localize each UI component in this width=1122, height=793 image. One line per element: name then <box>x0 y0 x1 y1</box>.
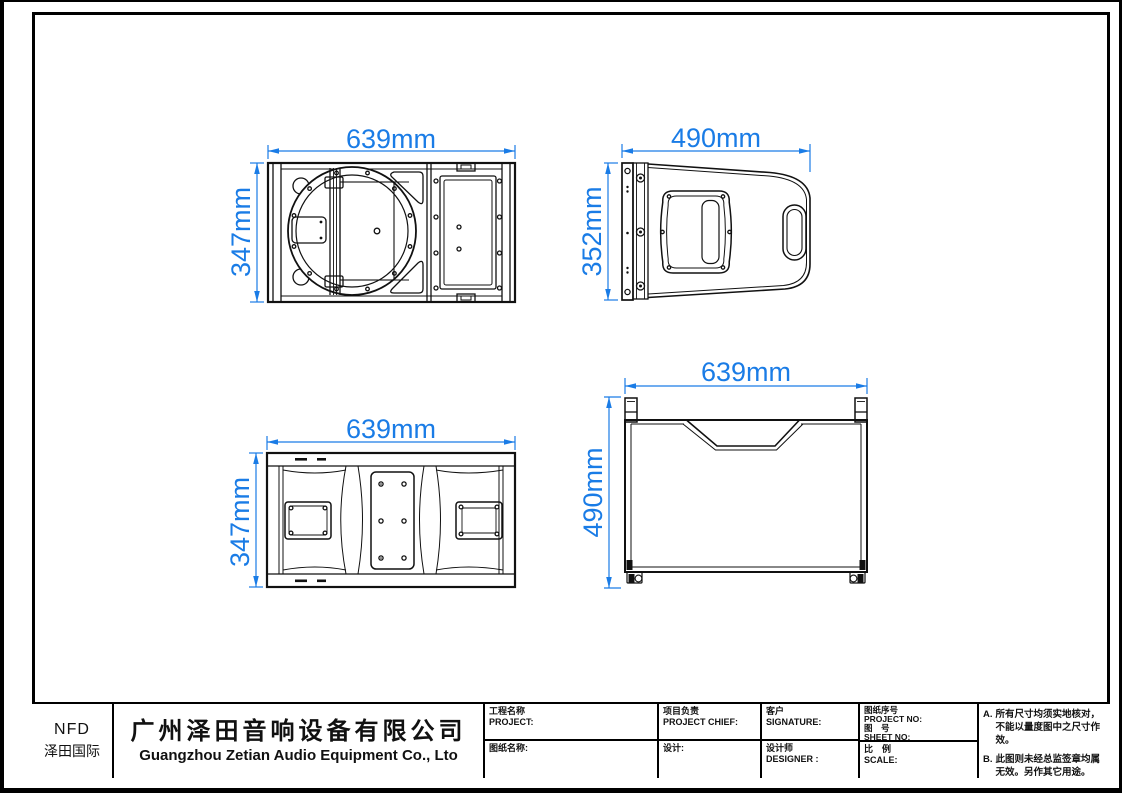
drawing-name-label: 图纸名称: <box>485 741 657 778</box>
top-view <box>625 398 867 583</box>
panel-seams <box>283 466 503 574</box>
port-section <box>434 163 502 302</box>
title-block: NFD 泽田国际 广州泽田音响设备有限公司 Guangzhou Zetian A… <box>32 702 1110 778</box>
logo-text: NFD <box>54 721 90 739</box>
side-view <box>622 163 810 300</box>
scale-label: 比 例 SCALE: <box>860 742 977 778</box>
rear-height-dim: 347mm <box>225 477 255 567</box>
side-rail-screws <box>625 168 645 294</box>
sheet-no-cell: 图纸序号 PROJECT NO: 图 号 SHEET NO: 比 例 SCALE… <box>858 704 977 778</box>
notes-cell: A. 所有尺寸均须实地核对，不能以量度图中之尺寸作效。 B. 此图则未经总监签章… <box>977 704 1110 778</box>
note-a-label: A. <box>983 709 993 747</box>
logo-subtext: 泽田国际 <box>44 741 100 761</box>
designer-label: 设计师 DESIGNER : <box>762 741 858 778</box>
company-name-cn: 广州泽田音响设备有限公司 <box>131 718 467 744</box>
note-b-label: B. <box>983 754 993 780</box>
speaker-cutout-outer <box>288 167 416 295</box>
rear-view <box>267 453 515 587</box>
note-b-text: 此图则未经总监签章均属无效。另作其它用途。 <box>996 754 1107 780</box>
side-height-dim: 352mm <box>577 186 607 276</box>
project-chief-cell: 项目负责 PROJECT CHIEF: 设计: <box>657 704 760 778</box>
connector-plate-right <box>456 502 502 539</box>
rear-view-dimensions: 639mm 347mm <box>225 414 515 587</box>
company-name-en: Guangzhou Zetian Audio Equipment Co., Lt… <box>139 747 458 764</box>
rear-width-dim: 639mm <box>346 414 436 444</box>
design-label: 设计: <box>659 741 760 778</box>
top-notch-outer <box>687 421 799 447</box>
top-width-dim: 639mm <box>701 357 791 387</box>
front-width-dim: 639mm <box>346 124 436 154</box>
top-view-dimensions: 639mm 490mm <box>578 357 867 588</box>
foot-right <box>850 572 865 583</box>
company-cell: 广州泽田音响设备有限公司 Guangzhou Zetian Audio Equi… <box>112 704 483 778</box>
note-b: B. 此图则未经总监签章均属无效。另作其它用途。 <box>983 754 1106 780</box>
connector-plate-left <box>285 502 331 539</box>
customer-signature-label: 客户 SIGNATURE: <box>762 704 858 741</box>
stadium-handle <box>783 205 806 260</box>
project-no-label: 图纸序号 PROJECT NO: 图 号 SHEET NO: <box>860 704 977 742</box>
pocket-handle <box>661 191 732 273</box>
logo-cell: NFD 泽田国际 <box>32 704 112 778</box>
side-width-dim: 490mm <box>671 123 761 153</box>
drawing-canvas: 639mm 347mm <box>0 0 1122 702</box>
signature-cell: 客户 SIGNATURE: 设计师 DESIGNER : <box>760 704 858 778</box>
project-chief-label: 项目负责 PROJECT CHIEF: <box>659 704 760 741</box>
project-cell: 工程名称 PROJECT: 图纸名称: <box>483 704 657 778</box>
foot-left <box>627 572 642 583</box>
note-a: A. 所有尺寸均须实地核对，不能以量度图中之尺寸作效。 <box>983 709 1106 747</box>
top-height-dim: 490mm <box>578 447 608 537</box>
center-plate <box>371 472 414 569</box>
note-a-text: 所有尺寸均须实地核对，不能以量度图中之尺寸作效。 <box>996 709 1107 747</box>
project-label: 工程名称 PROJECT: <box>485 704 657 741</box>
front-height-dim: 347mm <box>226 187 256 277</box>
rigging-post-left <box>625 398 637 422</box>
rigging-post-right <box>855 398 867 422</box>
front-view <box>268 163 515 302</box>
